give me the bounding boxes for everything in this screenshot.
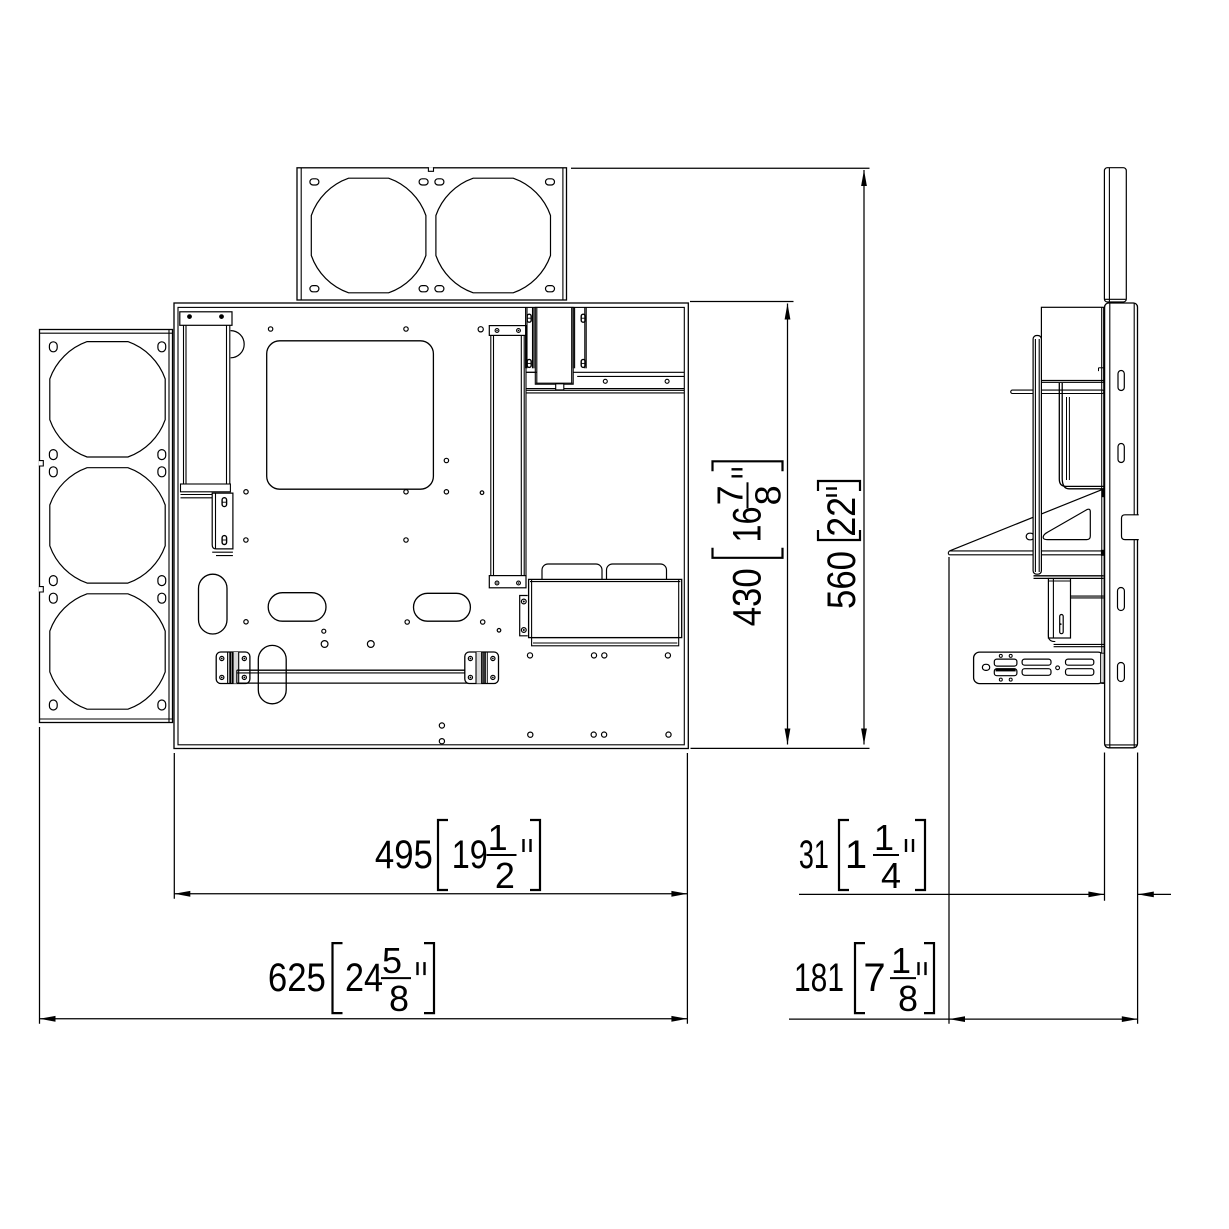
svg-text:1: 1 [845,833,867,877]
svg-text:1: 1 [488,817,508,858]
svg-text:7: 7 [863,956,885,1000]
svg-text:625: 625 [268,956,326,1000]
svg-text:4: 4 [881,855,901,896]
svg-text:22: 22 [820,497,864,537]
svg-text:31: 31 [799,833,829,877]
svg-text:181: 181 [794,956,844,1000]
svg-text:19: 19 [452,833,488,877]
svg-text:2: 2 [495,855,515,896]
svg-text:5: 5 [382,940,402,981]
svg-text:560: 560 [820,551,864,609]
svg-text:1: 1 [891,940,911,981]
svg-text:1: 1 [874,817,894,858]
svg-text:24: 24 [345,956,383,1000]
svg-text:8: 8 [389,978,409,1019]
svg-text:495: 495 [375,833,433,877]
svg-text:430: 430 [726,568,770,626]
svg-text:16: 16 [726,507,770,543]
svg-text:7: 7 [710,485,751,505]
svg-text:8: 8 [898,978,918,1019]
svg-text:8: 8 [747,485,788,505]
